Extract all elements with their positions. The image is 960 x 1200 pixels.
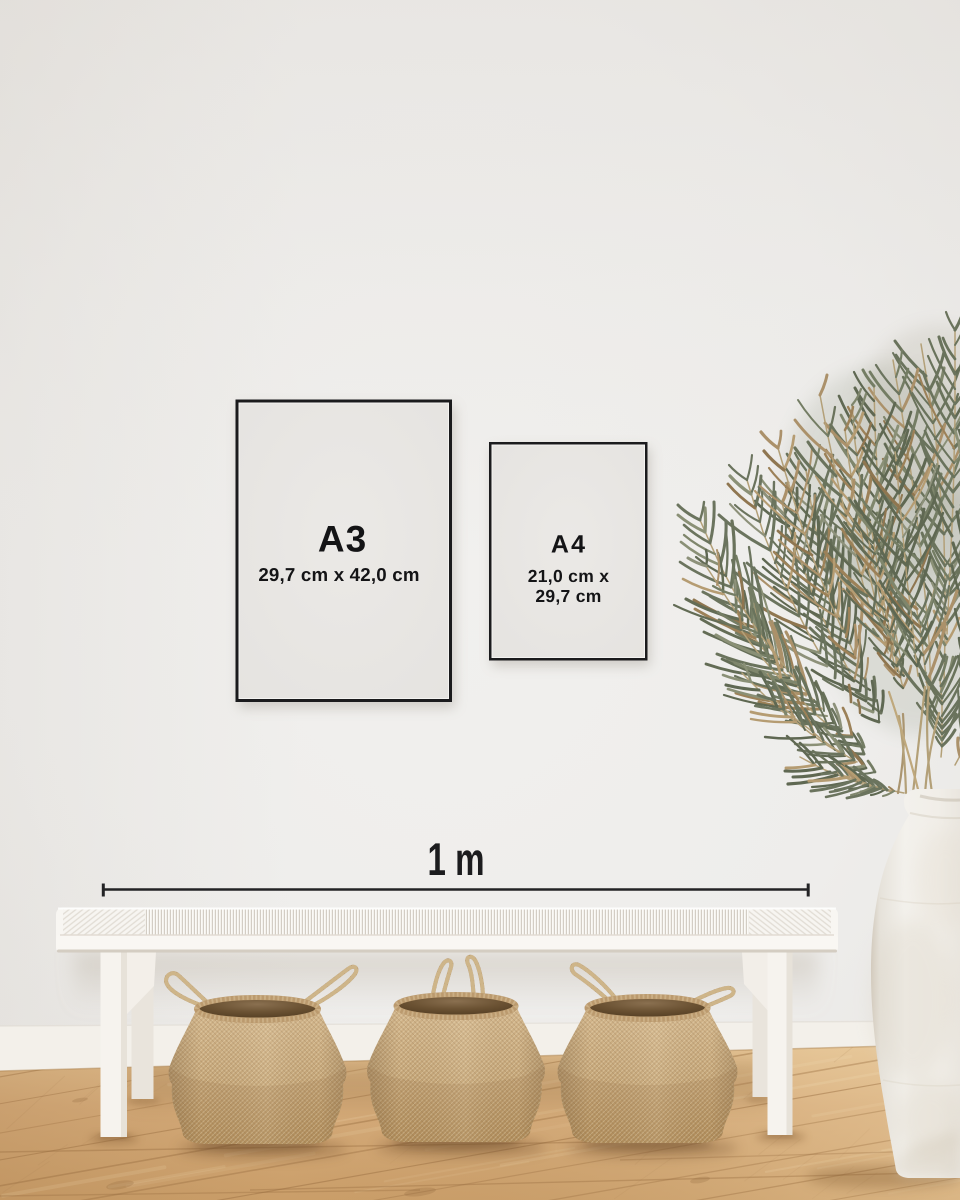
svg-text:29,7 cm: 29,7 cm xyxy=(535,586,601,606)
svg-text:A3: A3 xyxy=(318,519,367,560)
svg-text:29,7 cm x 42,0 cm: 29,7 cm x 42,0 cm xyxy=(258,564,419,585)
svg-text:A4: A4 xyxy=(551,531,587,559)
svg-text:21,0 cm x: 21,0 cm x xyxy=(528,566,610,586)
svg-text:1 m: 1 m xyxy=(428,833,485,885)
